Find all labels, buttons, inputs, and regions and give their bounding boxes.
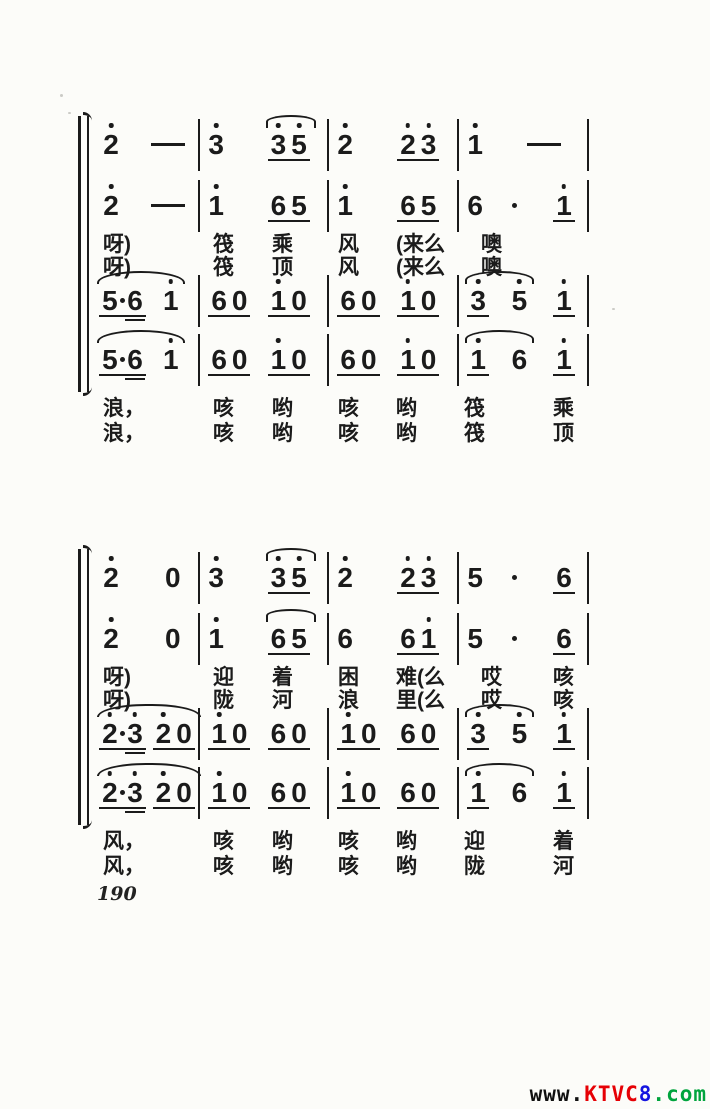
note-digit: 3 — [421, 565, 437, 591]
barline — [587, 334, 589, 386]
beat-group: 65 — [397, 193, 439, 222]
beat-group: 60 — [397, 780, 439, 809]
rest-zero: 0 — [421, 288, 437, 314]
beat-group — [527, 132, 561, 158]
beat-group: 10 — [397, 288, 439, 317]
octave-dot — [406, 556, 411, 561]
beat-group: 2 — [103, 193, 119, 219]
beat-group: 60 — [208, 288, 250, 317]
note-digit: 1 — [556, 288, 572, 314]
note-digit: 1 — [556, 721, 572, 747]
beat-group: 65 — [268, 193, 310, 222]
note-digit: 6 — [400, 626, 416, 652]
beat-group: 23 — [397, 132, 439, 161]
measure: 165 — [198, 626, 327, 652]
lyric-syllable: 迎 — [213, 666, 234, 690]
beat-group — [151, 193, 185, 219]
note-digit: 1 — [340, 780, 356, 806]
beat-group: 6 — [553, 626, 575, 655]
rest-zero: 0 — [232, 347, 248, 373]
lyric-syllable: 呀) — [103, 689, 131, 713]
lyric-syllable: 咳 — [213, 855, 234, 879]
slur-arc — [465, 330, 534, 343]
measure: 6010 — [327, 288, 457, 314]
note-digit: 2 — [103, 565, 119, 591]
lyric-line: 风，咳哟咳哟迎着 — [78, 830, 598, 854]
lyric-syllable: 哟 — [272, 830, 293, 854]
slur-arc — [266, 115, 316, 128]
beat-group: 6 — [512, 347, 528, 373]
slur-arc — [97, 330, 185, 343]
lyric-line: 呀)筏顶风(来么噢 — [78, 256, 598, 280]
sixteenth-beam — [125, 378, 145, 381]
lyric-syllable: 咳 — [213, 422, 234, 446]
note-digit: 2 — [156, 780, 172, 806]
lyric-syllable: 风， — [103, 855, 145, 879]
rest-zero: 0 — [232, 721, 248, 747]
watermark-segment: www. — [530, 1082, 585, 1106]
measure: 6010 — [327, 347, 457, 373]
beat-group: 0 — [165, 565, 181, 591]
note-digit: 2 — [102, 780, 118, 806]
octave-dot — [562, 184, 567, 189]
beat-group: 61 — [397, 626, 439, 655]
lyric-syllable: 咳 — [213, 397, 234, 421]
rest-zero: 0 — [291, 347, 307, 373]
note-digit: 6 — [211, 288, 227, 314]
barline — [587, 613, 589, 665]
rest-zero: 0 — [361, 780, 377, 806]
note-digit: 6 — [271, 626, 287, 652]
beat-group — [512, 626, 518, 652]
note-digit: 6 — [512, 347, 528, 373]
sixteenth-beam — [125, 811, 145, 814]
slur-arc — [97, 763, 201, 776]
beat-group: 2 — [103, 626, 119, 652]
measure: 56 — [457, 565, 587, 591]
rest-zero: 0 — [232, 288, 248, 314]
measure: 165 — [198, 193, 327, 219]
augmentation-dot — [120, 347, 126, 373]
rest-zero: 0 — [165, 565, 181, 591]
octave-dot — [426, 123, 431, 128]
beat-group: 2 — [103, 132, 119, 158]
lyric-syllable: 浪， — [103, 422, 145, 446]
measure: 61 — [457, 193, 587, 219]
beat-group: 1 — [553, 347, 575, 376]
beat-group: 60 — [337, 347, 379, 376]
beat-group: 10 — [268, 347, 310, 376]
augmentation-dot-glyph — [120, 731, 126, 737]
beat-group: 1 — [553, 193, 575, 222]
watermark-segment: 8 — [639, 1082, 653, 1106]
note-digit: 2 — [337, 132, 353, 158]
beat-group: 23 — [397, 565, 439, 594]
note-digit: 6 — [556, 626, 572, 652]
augmentation-dot — [512, 193, 518, 219]
augmentation-dot-glyph — [512, 575, 518, 581]
note-digit: 6 — [400, 780, 416, 806]
measure: 2320 — [95, 780, 198, 806]
octave-dot — [473, 123, 478, 128]
beat-group: 1 — [467, 347, 489, 376]
note-digit: 3 — [271, 565, 287, 591]
measure: 351 — [457, 288, 587, 314]
lyric-syllable: 呀) — [103, 256, 131, 280]
beat-group: 3 — [467, 288, 489, 317]
note-digit: 1 — [400, 288, 416, 314]
voice-line-3: 56160106010351 — [78, 288, 598, 314]
lyric-syllable: 筏 — [213, 233, 234, 257]
beat-group: 5 — [512, 288, 528, 314]
beat-group: 23 — [99, 721, 146, 750]
augmentation-dot — [120, 721, 126, 747]
lyric-syllable: 哟 — [272, 397, 293, 421]
lyric-syllable: 顶 — [272, 256, 293, 280]
octave-dot — [562, 338, 567, 343]
measure: 6010 — [198, 347, 327, 373]
lyric-syllable: 河 — [553, 855, 574, 879]
note-digit: 1 — [163, 288, 179, 314]
beat-group: 60 — [397, 721, 439, 750]
lyric-syllable: 浪 — [338, 689, 359, 713]
barline — [587, 119, 589, 171]
note-digit: 3 — [127, 780, 143, 806]
beat-group: 5 — [512, 721, 528, 747]
lyric-line: 呀)迎着困难(么哎咳 — [78, 666, 598, 690]
note-digit: 1 — [271, 347, 287, 373]
rest-zero: 0 — [176, 780, 192, 806]
measure: 20 — [95, 565, 198, 591]
measure: 335 — [198, 565, 327, 591]
rest-zero: 0 — [361, 721, 377, 747]
note-digit: 5 — [291, 193, 307, 219]
note-digit: 1 — [337, 193, 353, 219]
measure: 561 — [95, 347, 198, 373]
note-digit: 1 — [470, 780, 486, 806]
beat-group: 1 — [467, 780, 489, 809]
lyric-line: 呀)筏乘风(来么噢 — [78, 233, 598, 257]
lyric-line: 呀)陇河浪里(么哎咳 — [78, 689, 598, 713]
note-digit: 1 — [211, 780, 227, 806]
note-digit: 5 — [467, 565, 483, 591]
beat-group: 10 — [337, 780, 379, 809]
sixteenth-beam — [125, 752, 145, 755]
beat-group: 2 — [103, 565, 119, 591]
note-digit: 6 — [467, 193, 483, 219]
measure: 20 — [95, 626, 198, 652]
rest-zero: 0 — [232, 780, 248, 806]
measure: 161 — [457, 780, 587, 806]
note-digit: 6 — [271, 193, 287, 219]
lyric-syllable: 哎 — [481, 689, 502, 713]
lyric-syllable: 咳 — [553, 689, 574, 713]
note-digit: 3 — [421, 132, 437, 158]
note-digit: 2 — [400, 132, 416, 158]
measure: 2320 — [95, 721, 198, 747]
duration-dash — [527, 132, 561, 158]
page-number: 190 — [97, 883, 137, 905]
beat-group: 1 — [553, 780, 575, 809]
voice-line-4: 56160106010161 — [78, 347, 598, 373]
beat-group: 10 — [397, 347, 439, 376]
lyric-syllable: 噢 — [481, 233, 502, 257]
note-digit: 3 — [271, 132, 287, 158]
lyric-syllable: 顶 — [553, 422, 574, 446]
note-digit: 2 — [103, 132, 119, 158]
beat-group: 1 — [467, 132, 483, 158]
note-digit: 6 — [340, 347, 356, 373]
note-digit: 5 — [291, 132, 307, 158]
octave-dot — [406, 338, 411, 343]
beat-group: 1 — [208, 626, 224, 652]
octave-dot — [214, 123, 219, 128]
voice-line-2: 2016566156 — [78, 626, 598, 652]
beat-group: 56 — [99, 347, 146, 376]
rest-zero: 0 — [421, 347, 437, 373]
octave-dot — [426, 556, 431, 561]
octave-dot — [214, 184, 219, 189]
note-digit: 1 — [467, 132, 483, 158]
beat-group: 3 — [467, 721, 489, 750]
duration-dash-line — [527, 143, 561, 146]
lyric-syllable: 筏 — [464, 422, 485, 446]
lyric-syllable: 河 — [272, 689, 293, 713]
beat-group: 1 — [553, 721, 575, 750]
rest-zero: 0 — [165, 626, 181, 652]
note-digit: 2 — [337, 565, 353, 591]
octave-dot — [406, 123, 411, 128]
scan-speck — [68, 112, 71, 114]
note-digit: 6 — [271, 780, 287, 806]
measure: 1060 — [198, 721, 327, 747]
slur-arc — [266, 609, 316, 622]
beat-group: 56 — [99, 288, 146, 317]
note-digit: 5 — [421, 193, 437, 219]
lyric-syllable: 困 — [338, 666, 359, 690]
beat-group: 2 — [337, 565, 353, 591]
note-digit: 1 — [421, 626, 437, 652]
rest-zero: 0 — [291, 721, 307, 747]
beat-group: 6 — [553, 565, 575, 594]
note-digit: 5 — [467, 626, 483, 652]
measure: 561 — [95, 288, 198, 314]
beat-group — [512, 193, 518, 219]
measure: 165 — [327, 193, 457, 219]
note-digit: 6 — [556, 565, 572, 591]
barline — [587, 708, 589, 760]
rest-zero: 0 — [291, 288, 307, 314]
rest-zero: 0 — [361, 288, 377, 314]
beat-group: 2 — [337, 132, 353, 158]
note-digit: 1 — [208, 626, 224, 652]
measure: 2 — [95, 132, 198, 158]
measure: 1 — [457, 132, 587, 158]
augmentation-dot-glyph — [120, 357, 126, 363]
voice-line-4: 232010601060161 — [78, 780, 598, 806]
beat-group — [151, 132, 185, 158]
augmentation-dot-glyph — [512, 203, 518, 209]
beat-group: 20 — [153, 780, 195, 809]
lyric-syllable: 乘 — [272, 233, 293, 257]
slur-arc — [465, 763, 534, 776]
augmentation-dot — [120, 780, 126, 806]
beat-group: 1 — [163, 288, 179, 314]
lyric-syllable: 咳 — [338, 855, 359, 879]
note-digit: 2 — [102, 721, 118, 747]
sheet-music-page: 2335223121651656156160106010351561601060… — [0, 0, 710, 1109]
note-digit: 3 — [208, 132, 224, 158]
lyric-syllable: 筏 — [464, 397, 485, 421]
lyric-syllable: 哟 — [396, 830, 417, 854]
lyric-syllable: 着 — [272, 666, 293, 690]
octave-dot — [214, 556, 219, 561]
sixteenth-beam — [125, 319, 145, 322]
measure: 661 — [327, 626, 457, 652]
beat-group: 6 — [467, 193, 483, 219]
lyric-syllable: 着 — [553, 830, 574, 854]
beat-group: 1 — [337, 193, 353, 219]
site-watermark: www.KTVC8.com — [530, 1082, 707, 1106]
beat-group: 5 — [467, 565, 483, 591]
measure: 223 — [327, 132, 457, 158]
note-digit: 2 — [103, 626, 119, 652]
octave-dot — [343, 184, 348, 189]
beat-group: 5 — [467, 626, 483, 652]
watermark-segment: .com — [652, 1082, 707, 1106]
rest-zero: 0 — [176, 721, 192, 747]
note-digit: 3 — [470, 721, 486, 747]
augmentation-dot-glyph — [120, 790, 126, 796]
note-digit: 3 — [470, 288, 486, 314]
measure: 161 — [457, 347, 587, 373]
octave-dot — [109, 556, 114, 561]
beat-group: 60 — [208, 347, 250, 376]
voice-line-3: 232010601060351 — [78, 721, 598, 747]
beat-group: 65 — [268, 626, 310, 655]
beat-group: 0 — [165, 626, 181, 652]
measure: 223 — [327, 565, 457, 591]
note-digit: 5 — [291, 626, 307, 652]
note-digit: 1 — [163, 347, 179, 373]
lyric-syllable: 风 — [338, 256, 359, 280]
lyric-syllable: 咳 — [213, 830, 234, 854]
beat-group: 10 — [208, 780, 250, 809]
lyric-syllable: 风 — [338, 233, 359, 257]
note-digit: 3 — [127, 721, 143, 747]
lyric-syllable: 哟 — [272, 855, 293, 879]
beat-group: 3 — [208, 132, 224, 158]
note-digit: 5 — [291, 565, 307, 591]
lyric-line: 浪，咳哟咳哟筏乘 — [78, 397, 598, 421]
octave-dot — [276, 338, 281, 343]
lyric-syllable: 咳 — [553, 666, 574, 690]
beat-group: 60 — [337, 288, 379, 317]
note-digit: 6 — [271, 721, 287, 747]
measure: 335 — [198, 132, 327, 158]
lyric-syllable: 噢 — [481, 256, 502, 280]
note-digit: 5 — [102, 347, 118, 373]
lyric-syllable: 陇 — [213, 689, 234, 713]
note-digit: 6 — [400, 193, 416, 219]
rest-zero: 0 — [361, 347, 377, 373]
lyric-syllable: (来么 — [396, 233, 445, 257]
note-digit: 6 — [340, 288, 356, 314]
beat-group: 1 — [208, 193, 224, 219]
beat-group: 60 — [268, 780, 310, 809]
note-digit: 6 — [400, 721, 416, 747]
beat-group — [512, 565, 518, 591]
note-digit: 6 — [337, 626, 353, 652]
voice-line-2: 216516561 — [78, 193, 598, 219]
note-digit: 6 — [127, 288, 143, 314]
note-digit: 2 — [400, 565, 416, 591]
octave-dot — [562, 771, 567, 776]
octave-dot — [343, 123, 348, 128]
note-digit: 6 — [211, 347, 227, 373]
beat-group: 6 — [512, 780, 528, 806]
note-digit: 3 — [208, 565, 224, 591]
measure: 351 — [457, 721, 587, 747]
beat-group: 23 — [99, 780, 146, 809]
beat-group: 6 — [337, 626, 353, 652]
lyric-syllable: 咳 — [338, 422, 359, 446]
note-digit: 1 — [556, 193, 572, 219]
duration-dash — [151, 132, 185, 158]
lyric-syllable: 咳 — [338, 830, 359, 854]
lyric-syllable: 陇 — [464, 855, 485, 879]
beat-group: 35 — [268, 565, 310, 594]
lyric-syllable: 哟 — [396, 422, 417, 446]
note-digit: 1 — [208, 193, 224, 219]
lyric-syllable: (来么 — [396, 256, 445, 280]
note-digit: 1 — [400, 347, 416, 373]
octave-dot — [346, 771, 351, 776]
note-digit: 5 — [512, 721, 528, 747]
voice-line-1: 2033522356 — [78, 565, 598, 591]
note-digit: 2 — [156, 721, 172, 747]
augmentation-dot-glyph — [120, 298, 126, 304]
note-digit: 1 — [340, 721, 356, 747]
measure: 1060 — [198, 780, 327, 806]
duration-dash — [151, 193, 185, 219]
lyric-line: 浪，咳哟咳哟筏顶 — [78, 422, 598, 446]
beat-group: 10 — [337, 721, 379, 750]
lyric-line: 风，咳哟咳哟陇河 — [78, 855, 598, 879]
barline — [587, 275, 589, 327]
barline — [587, 180, 589, 232]
rest-zero: 0 — [421, 721, 437, 747]
beat-group: 35 — [268, 132, 310, 161]
note-digit: 5 — [512, 288, 528, 314]
lyric-syllable: 咳 — [338, 397, 359, 421]
barline — [587, 552, 589, 604]
lyric-syllable: 哎 — [481, 666, 502, 690]
augmentation-dot — [512, 565, 518, 591]
lyric-syllable: 难(么 — [396, 666, 445, 690]
lyric-syllable: 里(么 — [396, 689, 445, 713]
measure: 56 — [457, 626, 587, 652]
octave-dot — [109, 617, 114, 622]
augmentation-dot — [512, 626, 518, 652]
octave-dot — [109, 184, 114, 189]
note-digit: 1 — [271, 288, 287, 314]
measure: 1060 — [327, 721, 457, 747]
lyric-syllable: 哟 — [272, 422, 293, 446]
beat-group: 60 — [268, 721, 310, 750]
rest-zero: 0 — [291, 780, 307, 806]
lyric-syllable: 迎 — [464, 830, 485, 854]
